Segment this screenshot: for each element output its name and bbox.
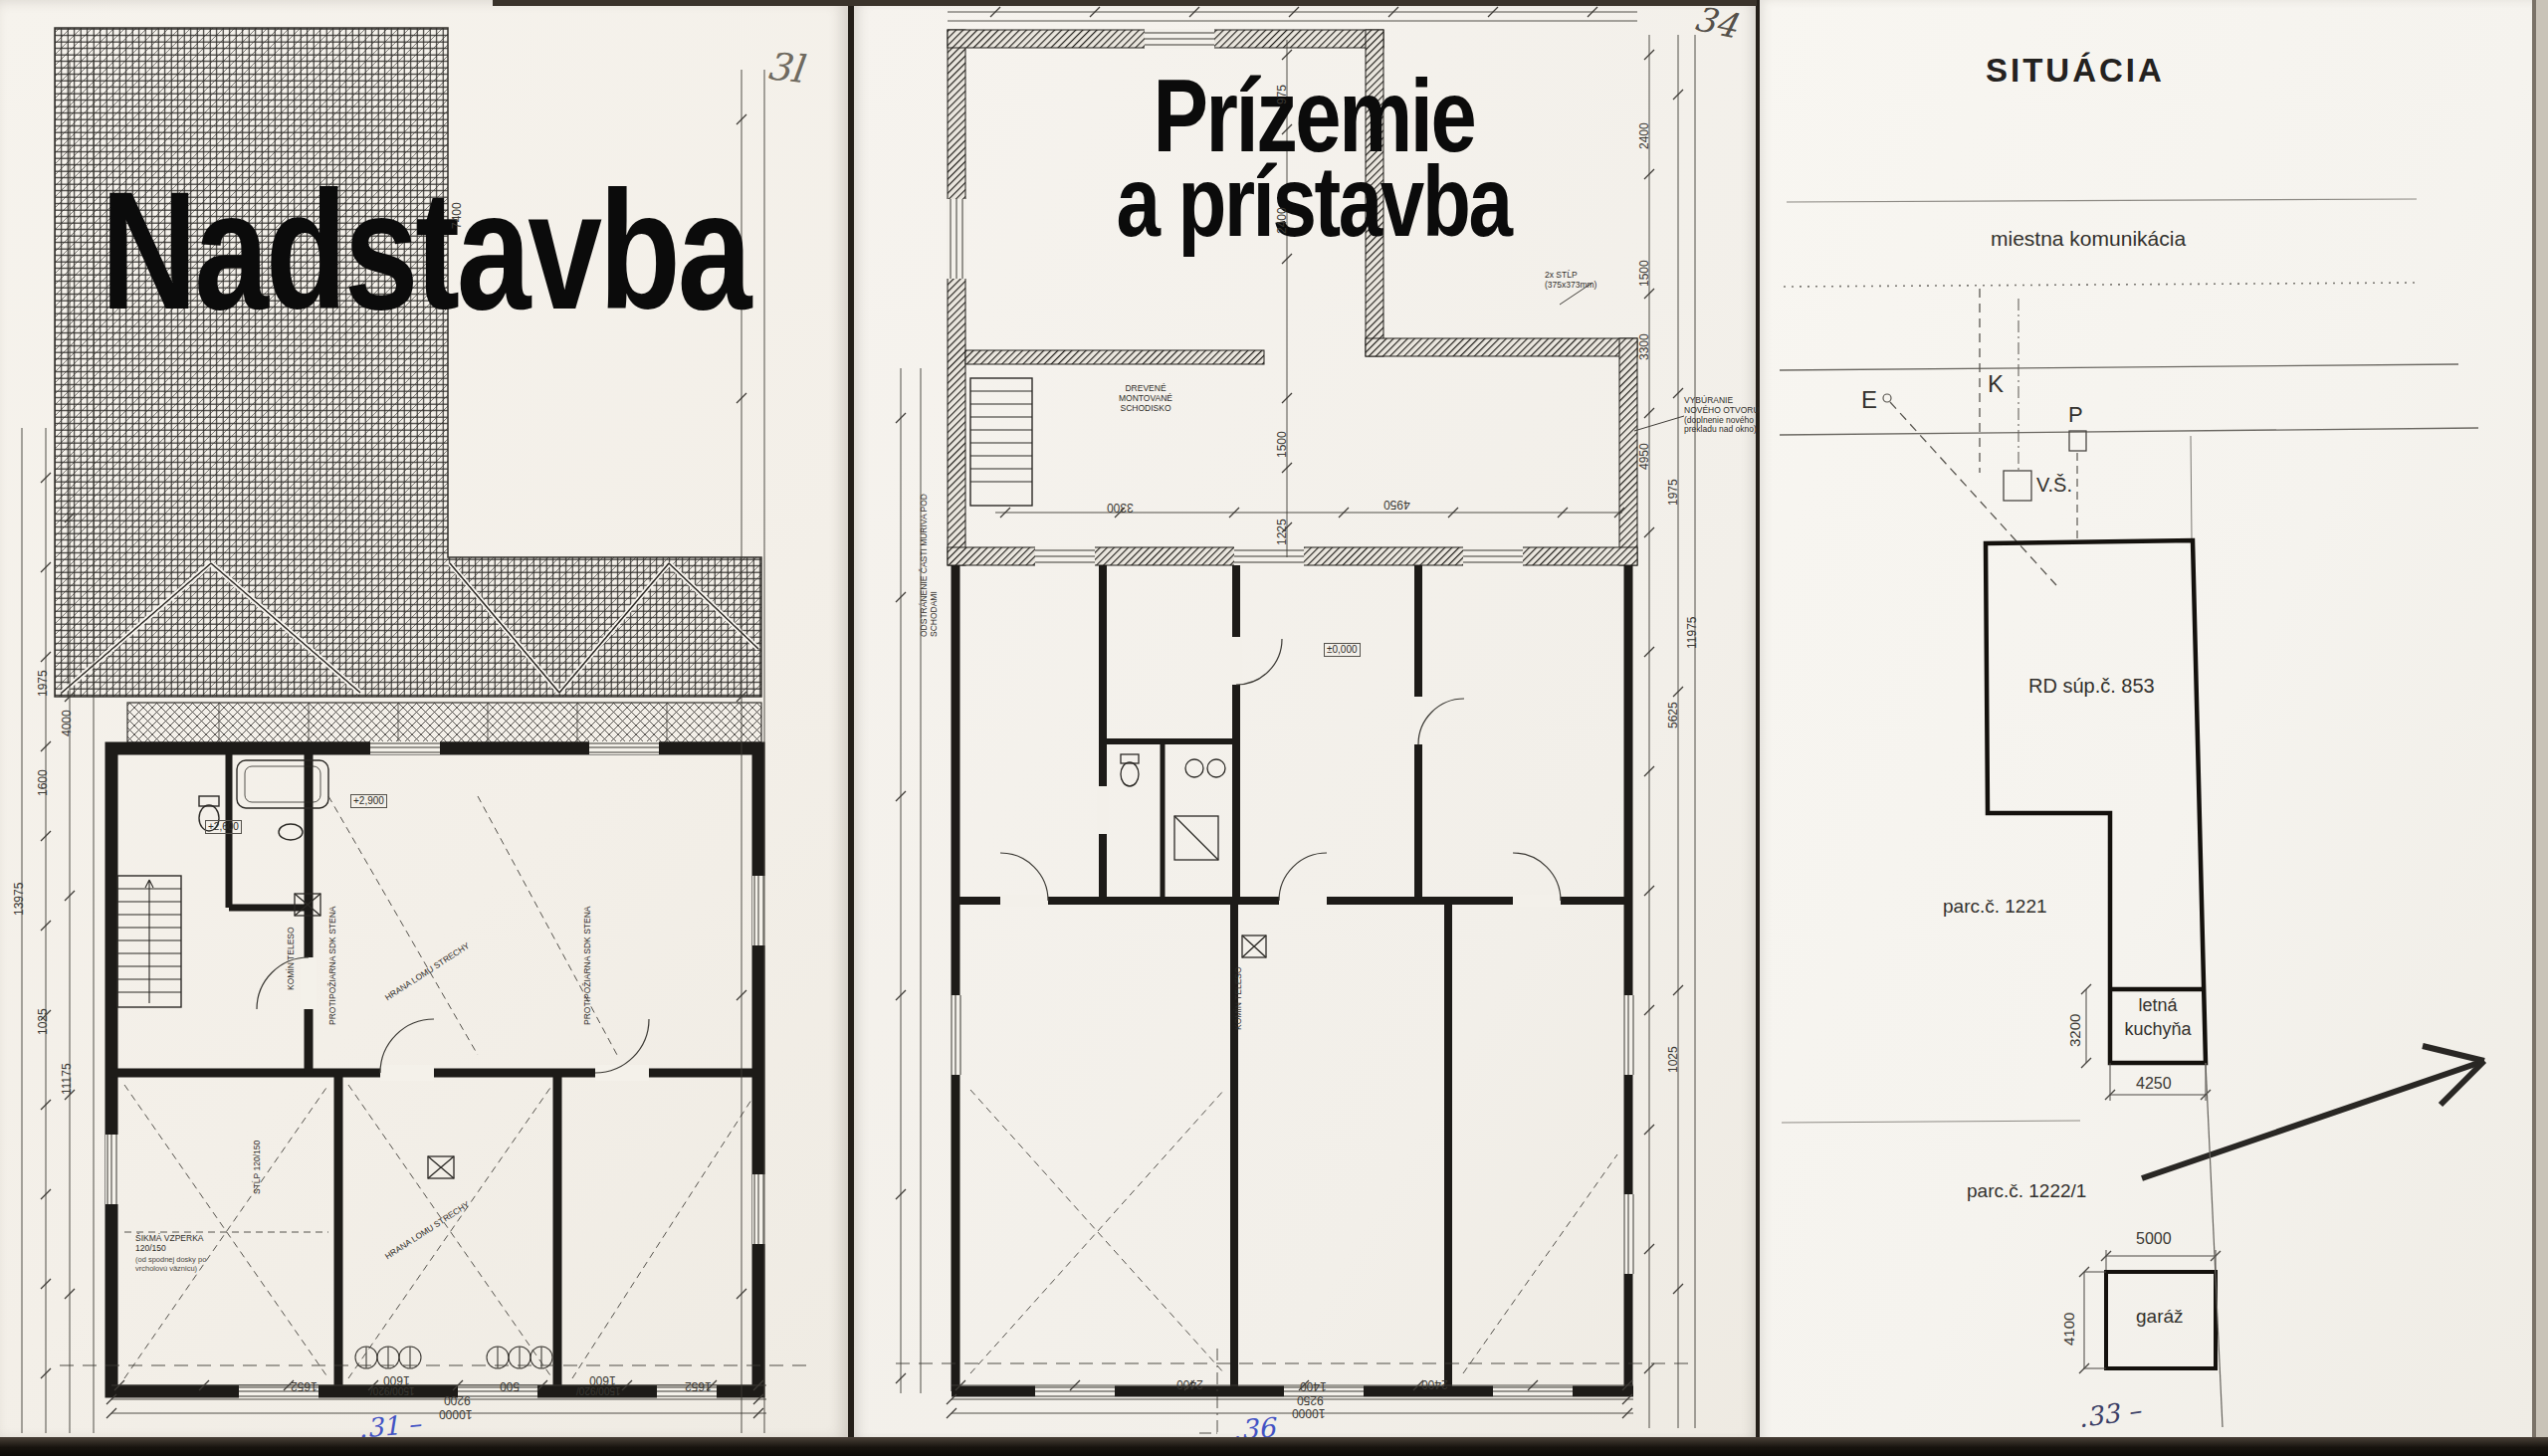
dim-left-chain-2: 1600 — [36, 769, 50, 796]
annotation-new-opening: VYBÚRANIE NOVÉHO OTVORU (doplnenie novéh… — [1684, 396, 1770, 435]
dim-garage-height: 4100 — [2060, 1313, 2077, 1346]
annotation-chimney-left: KOMÍN TELESO — [287, 927, 297, 990]
annotation-chimney-middle: KOMÍN TELESO — [1234, 966, 1244, 1030]
dim-mb-total2: 10000 — [1292, 1406, 1325, 1420]
dim-mr-2: 3300 — [1637, 333, 1651, 360]
dim-inner-3: 1225 — [1275, 519, 1289, 545]
dim-inner-h-0: 3300 — [1107, 501, 1134, 515]
left-corner-mark: 3l — [764, 44, 805, 92]
level-mark-1: +2,900 — [350, 794, 387, 808]
parcel-1221-label: parc.č. 1221 — [1943, 896, 2047, 918]
dim-mb-2: 2400 — [1421, 1377, 1448, 1391]
parcel-1222-label: parc.č. 1222/1 — [1967, 1180, 2086, 1202]
road-label: miestna komunikácia — [1991, 227, 2186, 251]
dim-bottom-0: 1652 — [291, 1379, 318, 1393]
prizemie-floor-plan — [950, 378, 1635, 1398]
scan-right-edge — [2532, 0, 2536, 1441]
dim-mr-5: 5625 — [1666, 702, 1680, 728]
dim-bottom-2: 1500/920/ — [370, 1385, 415, 1396]
annotation-column-middle: 2x STĹP (375x373mm) — [1545, 271, 1626, 291]
dim-kitchen-width: 4250 — [2136, 1075, 2172, 1093]
dim-bottom-total1: 9200 — [444, 1393, 471, 1407]
marker-e: E — [1861, 386, 1877, 414]
dim-left-chain-1: 1975 — [36, 670, 50, 697]
dim-mr-7: 1025 — [1666, 1046, 1680, 1073]
marker-p: P — [2068, 402, 2083, 428]
annotation-stairs: DREVENÉ MONTOVANÉ SCHODISKO — [1107, 384, 1184, 413]
dim-bottom-total2: 10000 — [439, 1407, 472, 1421]
summer-kitchen-label-1: letná — [2112, 995, 2204, 1016]
annotation-fireproof-wall-2: PROTIPOŽIARNA SDK STENA — [583, 907, 593, 1026]
annotation-brace: ŠIKMÁ VZPERKA 120/150 — [135, 1234, 225, 1254]
level-mark-2: +2,600 — [205, 820, 242, 834]
annotation-demolition: ODSTRÁNENIE ČASTI MURIVA POD SCHODAMI — [920, 468, 940, 637]
dim-inner-0: 975 — [1275, 85, 1289, 104]
dim-left-chain-4: 11175 — [60, 1063, 74, 1095]
dim-garage-width: 5000 — [2136, 1230, 2172, 1248]
dim-left-chain-3: 4000 — [60, 710, 74, 736]
dim-left-chain-5: 1025 — [36, 1008, 50, 1035]
house-label: RD súp.č. 853 — [2028, 675, 2155, 698]
dim-mr-6: 11975 — [1685, 617, 1699, 649]
dim-mb-0: 2400 — [1176, 1377, 1203, 1391]
scanned-floor-plans: 3l Nadstavba PROTIPOŽIARNA SDK STENA PRO… — [0, 0, 2548, 1456]
summer-kitchen-label-2: kuchyňa — [2112, 1019, 2204, 1040]
dim-kitchen-height: 3200 — [2066, 1014, 2083, 1047]
scan-bottom-shadow — [0, 1437, 2548, 1456]
water-shaft-label: V.Š. — [2036, 474, 2072, 497]
dim-left-chain-0: 13975 — [12, 883, 26, 916]
dim-mr-4: 1975 — [1666, 479, 1680, 506]
marker-k: K — [1988, 370, 2004, 398]
garage-label: garáž — [2136, 1306, 2184, 1328]
dim-mb-1: 1400 — [1300, 1379, 1327, 1393]
nadstavba-roof-plan — [55, 28, 761, 742]
dim-mr-1: 1500 — [1637, 260, 1651, 287]
dim-mr-0: 2400 — [1637, 122, 1651, 149]
dim-inner-h-1: 4950 — [1383, 498, 1410, 512]
direction-arrow-icon — [2142, 1046, 2484, 1178]
situacia-site-plan — [1780, 199, 2484, 1427]
dim-mr-3: 4950 — [1637, 443, 1651, 470]
dim-inner-1: 2400 — [1275, 207, 1289, 234]
annotation-column: STĹP 120/150 — [253, 1141, 263, 1194]
annotation-brace-note: (od spodnej dosky po vrcholovú väznicu) — [135, 1256, 230, 1273]
scan-right-margin — [2536, 0, 2548, 1441]
dim-bottom-5: 1500/920/ — [576, 1385, 621, 1396]
middle-page-title-line2: a prístavba — [1005, 151, 1622, 251]
annotation-fireproof-wall-1: PROTIPOŽIARNA SDK STENA — [328, 907, 338, 1026]
level-mark-middle: ±0,000 — [1324, 643, 1361, 657]
dim-right-chain-0: 7400 — [450, 202, 464, 229]
dim-bottom-3: 500 — [500, 1379, 520, 1393]
dim-bottom-6: 1652 — [685, 1379, 712, 1393]
dim-inner-2: 1500 — [1275, 431, 1289, 458]
right-page-title: SITUÁCIA — [1986, 52, 2165, 90]
nadstavba-floor-plan — [106, 741, 765, 1398]
left-page-title: Nadstavba — [20, 167, 766, 334]
dim-mb-total1: 9250 — [1297, 1393, 1324, 1407]
